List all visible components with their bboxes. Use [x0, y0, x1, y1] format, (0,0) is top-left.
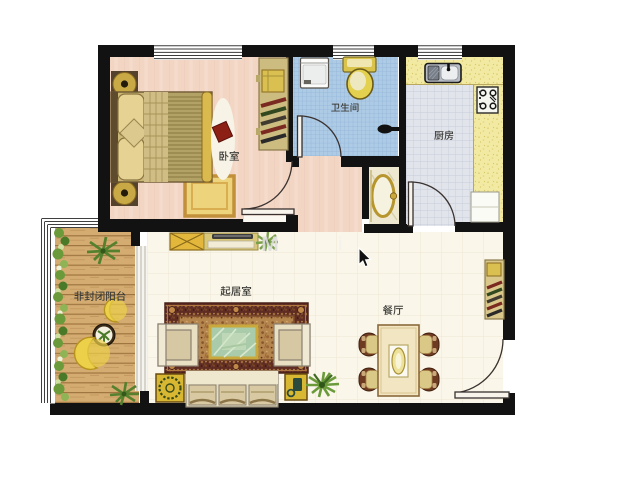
- svg-text:M: M: [261, 233, 279, 256]
- svg-text:i: i: [337, 234, 342, 254]
